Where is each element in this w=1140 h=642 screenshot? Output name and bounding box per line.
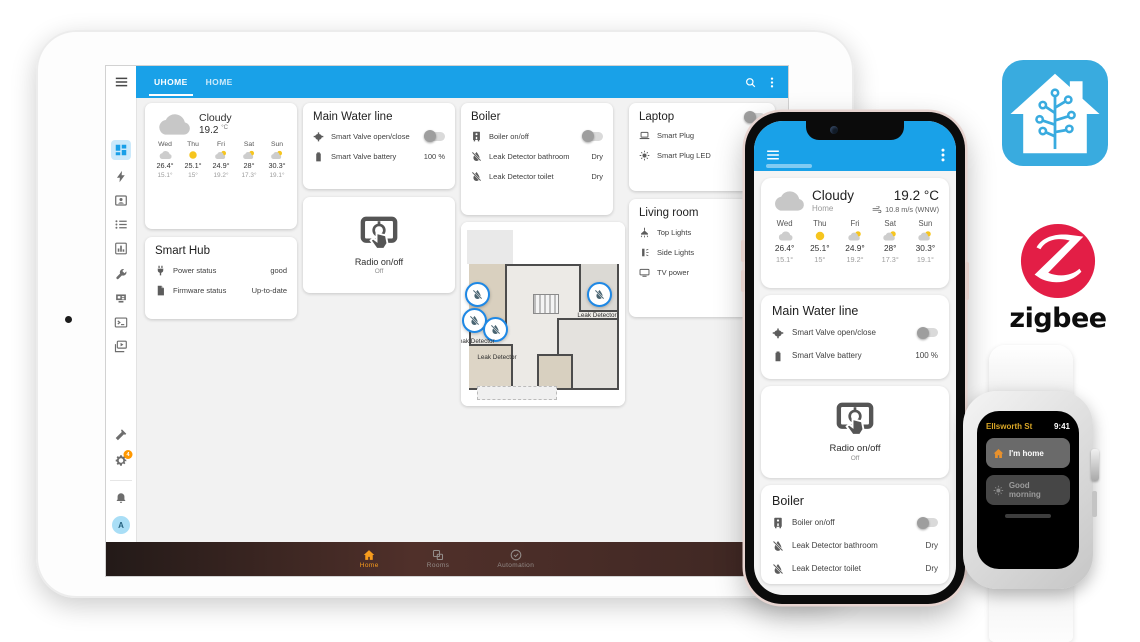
home-icon xyxy=(993,448,1004,459)
dashboard-icon xyxy=(115,144,127,156)
marker-label: Leak Detector xyxy=(477,354,517,362)
forecast-low: 19.1° xyxy=(270,172,285,179)
entity-row[interactable]: Leak Detector toilet Dry xyxy=(761,557,949,580)
forecast-low: 15° xyxy=(814,255,825,264)
sidebar-item-settings[interactable]: 4 xyxy=(115,454,128,467)
forecast-high: 28° xyxy=(243,161,254,170)
water-line-card: Main Water line Smart Valve open/close S… xyxy=(303,103,455,189)
entity-label: Leak Detector toilet xyxy=(792,564,918,573)
card-title: Smart Hub xyxy=(145,237,297,260)
scene-button-im-home[interactable]: I'm home xyxy=(986,438,1070,468)
entity-value: Dry xyxy=(591,172,603,181)
watch-time: 9:41 xyxy=(1054,422,1070,431)
radio-button-card[interactable]: Radio on/off Off xyxy=(761,386,949,478)
forecast-high: 30.3° xyxy=(916,243,935,253)
phone-screen: Cloudy Home 19.2 °C 10.8 m/s (WNW) xyxy=(754,121,956,595)
card-title: Laptop xyxy=(639,111,744,123)
volume-button xyxy=(741,270,745,292)
leak-detector-icon xyxy=(469,315,480,326)
forecast-icon xyxy=(242,150,256,160)
overflow-menu-icon[interactable] xyxy=(941,148,945,162)
boiler-card: Boiler Boiler on/off Leak Detector bathr… xyxy=(461,103,613,215)
home-assistant-logo xyxy=(1002,60,1108,166)
watch-crown[interactable] xyxy=(1091,449,1099,481)
ipad-frame: UHOME HOME xyxy=(36,30,854,598)
forecast-low: 19.2° xyxy=(846,255,863,264)
forecast-low: 15.1° xyxy=(776,255,793,264)
sidebar-item-media[interactable] xyxy=(115,340,128,353)
entity-value: Up-to-date xyxy=(252,286,287,295)
iphone-frame: Cloudy Home 19.2 °C 10.8 m/s (WNW) xyxy=(745,112,965,604)
weather-temp: 19.2 xyxy=(199,125,218,136)
watch-scroll-indicator xyxy=(1005,514,1051,518)
forecast-low: 15.1° xyxy=(158,172,173,179)
sidebar-item-energy[interactable] xyxy=(115,170,128,183)
watch-body: Ellsworth St 9:41 I'm home Good morning xyxy=(963,391,1093,589)
led-icon xyxy=(639,150,650,161)
forecast-day: Thu 25.1° 15° xyxy=(802,219,837,264)
user-avatar[interactable]: A xyxy=(112,516,130,534)
watch-screen: Ellsworth St 9:41 I'm home Good morning xyxy=(977,411,1079,569)
tablet-bottom-nav: Home Rooms Automation xyxy=(106,542,788,576)
forecast-icon xyxy=(186,150,200,160)
forecast-day: Sun 30.3° 19.1° xyxy=(908,219,943,264)
tab-indicator xyxy=(766,164,812,168)
entity-label: Smart Valve battery xyxy=(331,152,417,161)
boiler-icon xyxy=(772,517,784,529)
rooms-icon xyxy=(432,549,444,561)
leak-detector-icon xyxy=(594,289,605,300)
phone-dashboard: Cloudy Home 19.2 °C 10.8 m/s (WNW) xyxy=(754,171,956,595)
forecast-low: 15° xyxy=(188,172,198,179)
entity-label: Leak Detector bathroom xyxy=(792,541,918,550)
entity-row[interactable]: Leak Detector bathroom Dry xyxy=(761,534,949,557)
card-title: Boiler xyxy=(761,485,949,511)
forecast-high: 24.9° xyxy=(212,161,229,170)
card-title: Boiler xyxy=(461,103,613,126)
forecast-icon xyxy=(917,230,933,242)
toggle-switch[interactable] xyxy=(424,132,445,141)
entity-row[interactable]: Boiler on/off xyxy=(461,126,613,146)
nav-label: Automation xyxy=(497,562,534,569)
toggle-switch[interactable] xyxy=(917,328,938,337)
forecast-day-name: Fri xyxy=(217,141,225,148)
entity-value: 100 % xyxy=(424,152,445,161)
floorplan-room xyxy=(537,354,573,388)
entity-row[interactable]: Leak Detector bathroom Dry xyxy=(461,146,613,166)
ipad-camera xyxy=(65,316,72,323)
forecast-icon xyxy=(158,150,172,160)
forecast-high: 30.3° xyxy=(268,161,285,170)
battery-icon xyxy=(772,350,784,362)
tab-home[interactable]: HOME xyxy=(206,77,233,87)
forecast-icon xyxy=(847,230,863,242)
sidebar-item-terminal[interactable] xyxy=(115,316,128,329)
card-title: Main Water line xyxy=(303,103,455,126)
sidebar-item-notifications[interactable] xyxy=(115,492,128,505)
marker-label: Leak Detector xyxy=(461,338,495,346)
sidebar-item-hacs[interactable] xyxy=(115,292,128,305)
forecast-icon xyxy=(777,230,793,242)
weather-condition: Cloudy xyxy=(812,188,854,203)
entity-label: Smart Valve open/close xyxy=(792,328,909,337)
weather-location: Home xyxy=(812,204,854,213)
leak-detector-marker[interactable] xyxy=(587,282,612,307)
forecast-day: Sat 28° 17.3° xyxy=(235,141,263,179)
weather-unit: °C xyxy=(221,125,228,131)
forecast-day: Sat 28° 17.3° xyxy=(873,219,908,264)
floorplan: Leak Detector Leak Detector Leak Detecto… xyxy=(461,222,625,406)
entity-value: Dry xyxy=(591,152,603,161)
tablet-app-bar: UHOME HOME xyxy=(136,66,788,98)
zigbee-wordmark: zigbee xyxy=(1004,303,1112,334)
leak-detector-icon xyxy=(472,289,483,300)
entity-label: Smart Valve battery xyxy=(792,351,907,360)
sidebar-item-dashboard[interactable] xyxy=(111,140,131,160)
forecast-high: 28° xyxy=(884,243,897,253)
forecast-icon xyxy=(882,230,898,242)
forecast-row: Wed 26.4° 15.1° Thu 25.1° 15° Fri xyxy=(145,138,297,179)
touch-button-icon xyxy=(832,402,878,440)
forecast-high: 26.4° xyxy=(156,161,173,170)
radio-state: Off xyxy=(851,455,860,462)
floorplan-card: Leak Detector Leak Detector Leak Detecto… xyxy=(461,222,625,406)
valve-icon xyxy=(772,327,784,339)
forecast-day: Fri 24.9° 19.2° xyxy=(837,219,872,264)
sidebar-item-tools[interactable] xyxy=(115,268,128,281)
nav-item-automation[interactable]: Automation xyxy=(497,549,534,569)
weather-unit: °C xyxy=(924,188,939,203)
forecast-day-name: Thu xyxy=(187,141,199,148)
forecast-day: Thu 25.1° 15° xyxy=(179,141,207,179)
toggle-switch[interactable] xyxy=(582,132,603,141)
leak-detector-marker[interactable] xyxy=(465,282,490,307)
forecast-day-name: Sat xyxy=(884,219,896,228)
entity-value: good xyxy=(270,266,287,275)
sidebar-menu-button[interactable] xyxy=(106,66,136,98)
leak-detector-icon xyxy=(471,151,482,162)
zigbee-logo: zigbee xyxy=(1004,222,1112,334)
sidebar-divider xyxy=(110,480,132,481)
floorplan-stairs xyxy=(533,294,559,314)
forecast-high: 24.9° xyxy=(845,243,864,253)
automation-icon xyxy=(510,549,522,561)
forecast-day: Wed 26.4° 15.1° xyxy=(767,219,802,264)
nav-label: Home xyxy=(360,562,379,569)
forecast-low: 17.3° xyxy=(242,172,257,179)
nav-item-rooms[interactable]: Rooms xyxy=(427,549,450,569)
laptop-icon xyxy=(639,130,650,141)
home-icon xyxy=(363,549,375,561)
tablet-dashboard: Cloudy 19.2 °C Wed 26.4° 15.1° Thu xyxy=(136,98,788,542)
marker-label: Leak Detector xyxy=(577,312,617,320)
floorplan-room xyxy=(469,344,513,388)
weather-card[interactable]: Cloudy 19.2 °C Wed 26.4° 15.1° Thu xyxy=(145,103,297,229)
entity-label: Boiler on/off xyxy=(792,518,909,527)
weather-card[interactable]: Cloudy Home 19.2 °C 10.8 m/s (WNW) xyxy=(761,178,949,288)
leak-detector-icon xyxy=(471,171,482,182)
forecast-day-name: Wed xyxy=(158,141,172,148)
entity-row[interactable]: Smart Valve open/close xyxy=(761,321,949,344)
sunrise-icon xyxy=(993,485,1004,496)
entity-label: Leak Detector toilet xyxy=(489,172,584,181)
forecast-low: 17.3° xyxy=(882,255,899,264)
forecast-icon xyxy=(270,150,284,160)
radio-label: Radio on/off xyxy=(829,443,880,454)
weather-condition: Cloudy xyxy=(199,112,232,124)
forecast-day: Wed 26.4° 15.1° xyxy=(151,141,179,179)
leak-detector-icon xyxy=(772,540,784,552)
scene-label: I'm home xyxy=(1009,449,1044,458)
power-plug-icon xyxy=(155,265,166,276)
tv-icon xyxy=(639,267,650,278)
forecast-high: 25.1° xyxy=(184,161,201,170)
entity-row[interactable]: Power status good xyxy=(145,260,297,280)
forecast-high: 25.1° xyxy=(810,243,829,253)
forecast-icon xyxy=(812,230,828,242)
entity-row[interactable]: Firmware status Up-to-date xyxy=(145,280,297,300)
forecast-day-name: Sat xyxy=(244,141,254,148)
floorplan-deck xyxy=(467,230,513,264)
entity-row[interactable]: Smart Valve battery 100 % xyxy=(303,146,455,166)
forecast-high: 26.4° xyxy=(775,243,794,253)
power-button xyxy=(965,262,969,300)
leak-detector-icon xyxy=(772,563,784,575)
promo-canvas: UHOME HOME xyxy=(0,0,1140,642)
water-line-card: Main Water line Smart Valve open/close S… xyxy=(761,295,949,379)
entity-label: Smart Valve open/close xyxy=(331,132,417,141)
phone-camera xyxy=(830,126,838,134)
smart-hub-card: Smart Hub Power status good Firmware sta… xyxy=(145,237,297,319)
valve-icon xyxy=(313,131,324,142)
sidebar-item-developer-tools[interactable] xyxy=(115,428,128,441)
scene-label: Good morning xyxy=(1009,481,1063,499)
watch-location-title: Ellsworth St xyxy=(986,422,1032,431)
forecast-day-name: Fri xyxy=(850,219,859,228)
floorplan-porch xyxy=(477,386,557,400)
entity-row[interactable]: Leak Detector toilet Dry xyxy=(461,166,613,186)
cloudy-weather-icon xyxy=(155,113,191,136)
tablet-sidebar: 4 A xyxy=(106,98,137,542)
battery-icon xyxy=(313,151,324,162)
forecast-day: Sun 30.3° 19.1° xyxy=(263,141,291,179)
forecast-day-name: Sun xyxy=(271,141,283,148)
weather-temp: 19.2 xyxy=(894,188,920,203)
entity-row[interactable]: Smart Valve open/close xyxy=(303,126,455,146)
forecast-row: Wed 26.4° 15.1° Thu 25.1° 15° Fri xyxy=(761,216,949,264)
cloudy-weather-icon xyxy=(771,190,805,212)
entity-value: Dry xyxy=(926,541,938,550)
wind-icon xyxy=(872,206,882,213)
forecast-low: 19.2° xyxy=(214,172,229,179)
weather-wind: 10.8 m/s (WNW) xyxy=(885,205,939,214)
toggle-switch[interactable] xyxy=(917,518,938,527)
forecast-day-name: Thu xyxy=(813,219,826,228)
ceiling-light-icon xyxy=(639,227,650,238)
entity-label: Power status xyxy=(173,266,263,275)
tab-uhome[interactable]: UHOME xyxy=(154,77,188,87)
search-icon[interactable] xyxy=(745,77,756,88)
entity-label: Boiler on/off xyxy=(489,132,575,141)
entity-row[interactable]: Boiler on/off xyxy=(761,511,949,534)
boiler-card: Boiler Boiler on/off Leak Detector bathr… xyxy=(761,485,949,584)
sidebar-item-devices[interactable] xyxy=(115,194,128,207)
forecast-day-name: Sun xyxy=(918,219,932,228)
leak-detector-icon xyxy=(490,324,501,335)
hamburger-icon xyxy=(115,77,128,87)
overflow-menu-icon[interactable] xyxy=(770,77,774,88)
entity-value: Dry xyxy=(926,564,938,573)
hamburger-icon[interactable] xyxy=(766,150,780,160)
forecast-low: 19.1° xyxy=(917,255,934,264)
watch-side-button[interactable] xyxy=(1092,491,1097,517)
sidebar-item-logbook[interactable] xyxy=(115,218,128,231)
tablet-screen: UHOME HOME xyxy=(106,66,788,576)
scene-button-good-morning[interactable]: Good morning xyxy=(986,475,1070,505)
wall-light-icon xyxy=(639,247,650,258)
radio-button-card[interactable]: Radio on/off Off xyxy=(303,197,455,293)
zigbee-mark xyxy=(1019,222,1097,300)
radio-label: Radio on/off xyxy=(355,257,403,267)
touch-button-icon xyxy=(356,216,402,254)
nav-item-home[interactable]: Home xyxy=(360,549,379,569)
nav-label: Rooms xyxy=(427,562,450,569)
entity-label: Firmware status xyxy=(173,286,245,295)
radio-state: Off xyxy=(375,268,384,275)
forecast-day-name: Wed xyxy=(777,219,793,228)
smartwatch: Ellsworth St 9:41 I'm home Good morning xyxy=(963,345,1099,642)
card-title: Main Water line xyxy=(761,295,949,321)
volume-button xyxy=(741,240,745,262)
forecast-icon xyxy=(214,150,228,160)
entity-label: Leak Detector bathroom xyxy=(489,152,584,161)
entity-value: 100 % xyxy=(915,351,938,360)
forecast-day: Fri 24.9° 19.2° xyxy=(207,141,235,179)
file-icon xyxy=(155,285,166,296)
sidebar-item-history[interactable] xyxy=(115,242,128,255)
boiler-icon xyxy=(471,131,482,142)
settings-badge: 4 xyxy=(124,450,133,459)
phone-notch xyxy=(806,121,904,140)
entity-row[interactable]: Smart Valve battery 100 % xyxy=(761,344,949,367)
